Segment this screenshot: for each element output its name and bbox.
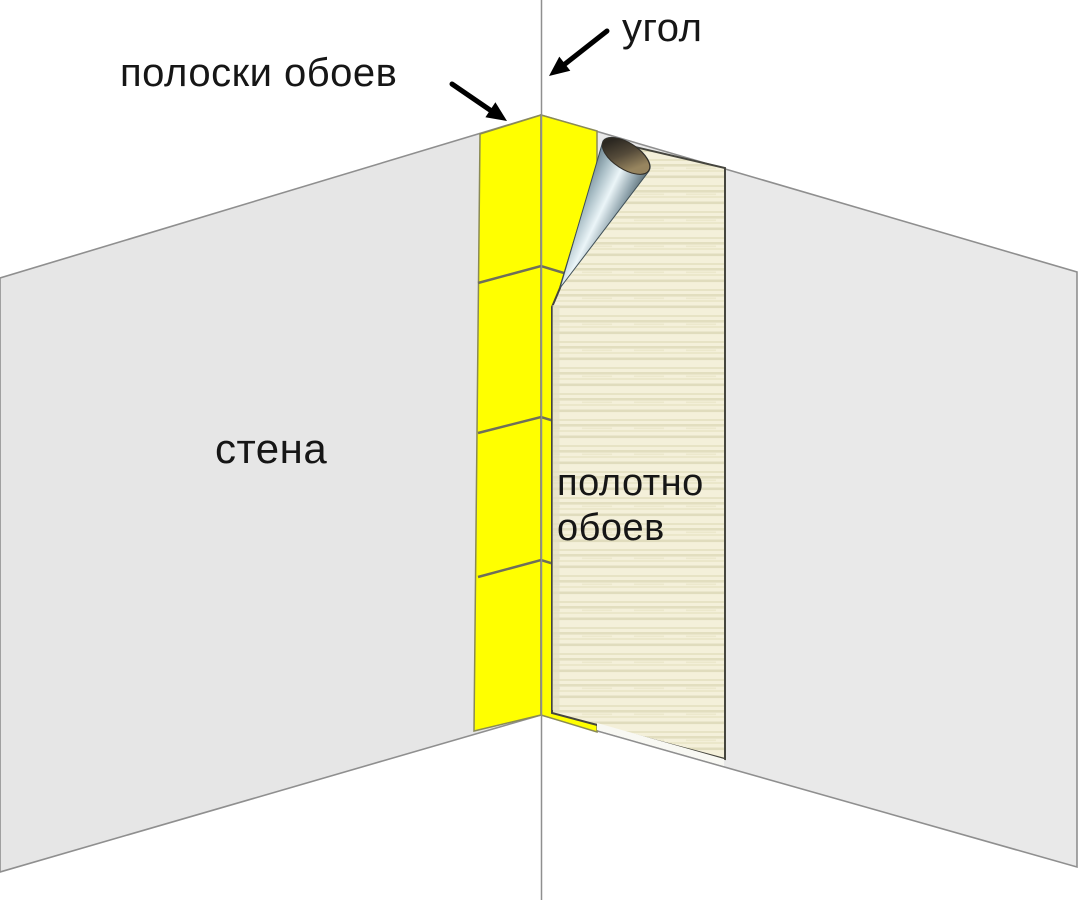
diagram-canvas: полоски обоев угол стена полотно обоев	[0, 0, 1078, 900]
corner-wallpapering-diagram	[0, 0, 1078, 900]
label-corner: угол	[622, 5, 702, 52]
label-wallpaper-strips: полоски обоев	[120, 50, 397, 97]
label-wallpaper-panel: полотно обоев	[557, 461, 704, 551]
wallpaper-strip-left	[474, 115, 541, 731]
label-wall: стена	[215, 424, 327, 474]
